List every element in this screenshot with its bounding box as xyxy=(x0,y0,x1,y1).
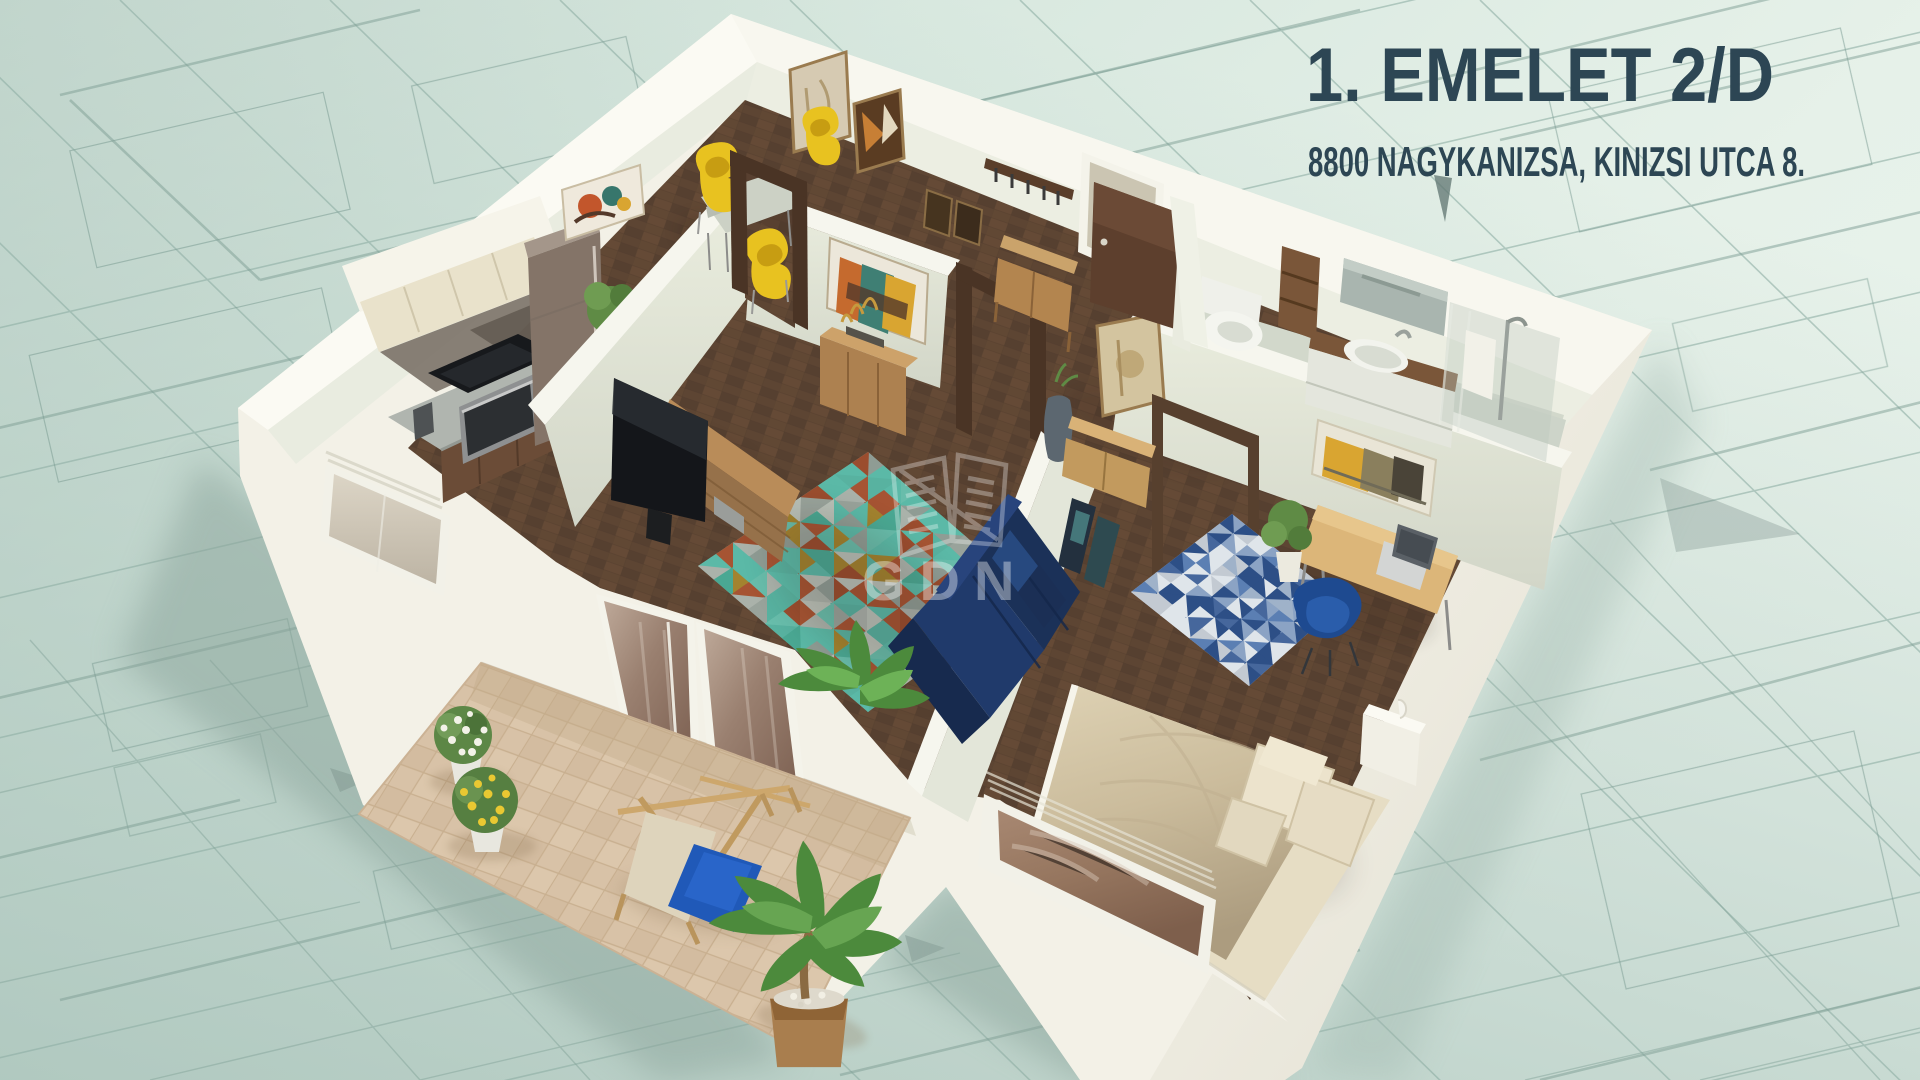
svg-text:GDN: GDN xyxy=(862,549,1028,612)
svg-text:1. EMELET 2/D: 1. EMELET 2/D xyxy=(1306,33,1774,118)
svg-text:8800 NAGYKANIZSA, KINIZSI UTCA: 8800 NAGYKANIZSA, KINIZSI UTCA 8. xyxy=(1308,138,1805,185)
